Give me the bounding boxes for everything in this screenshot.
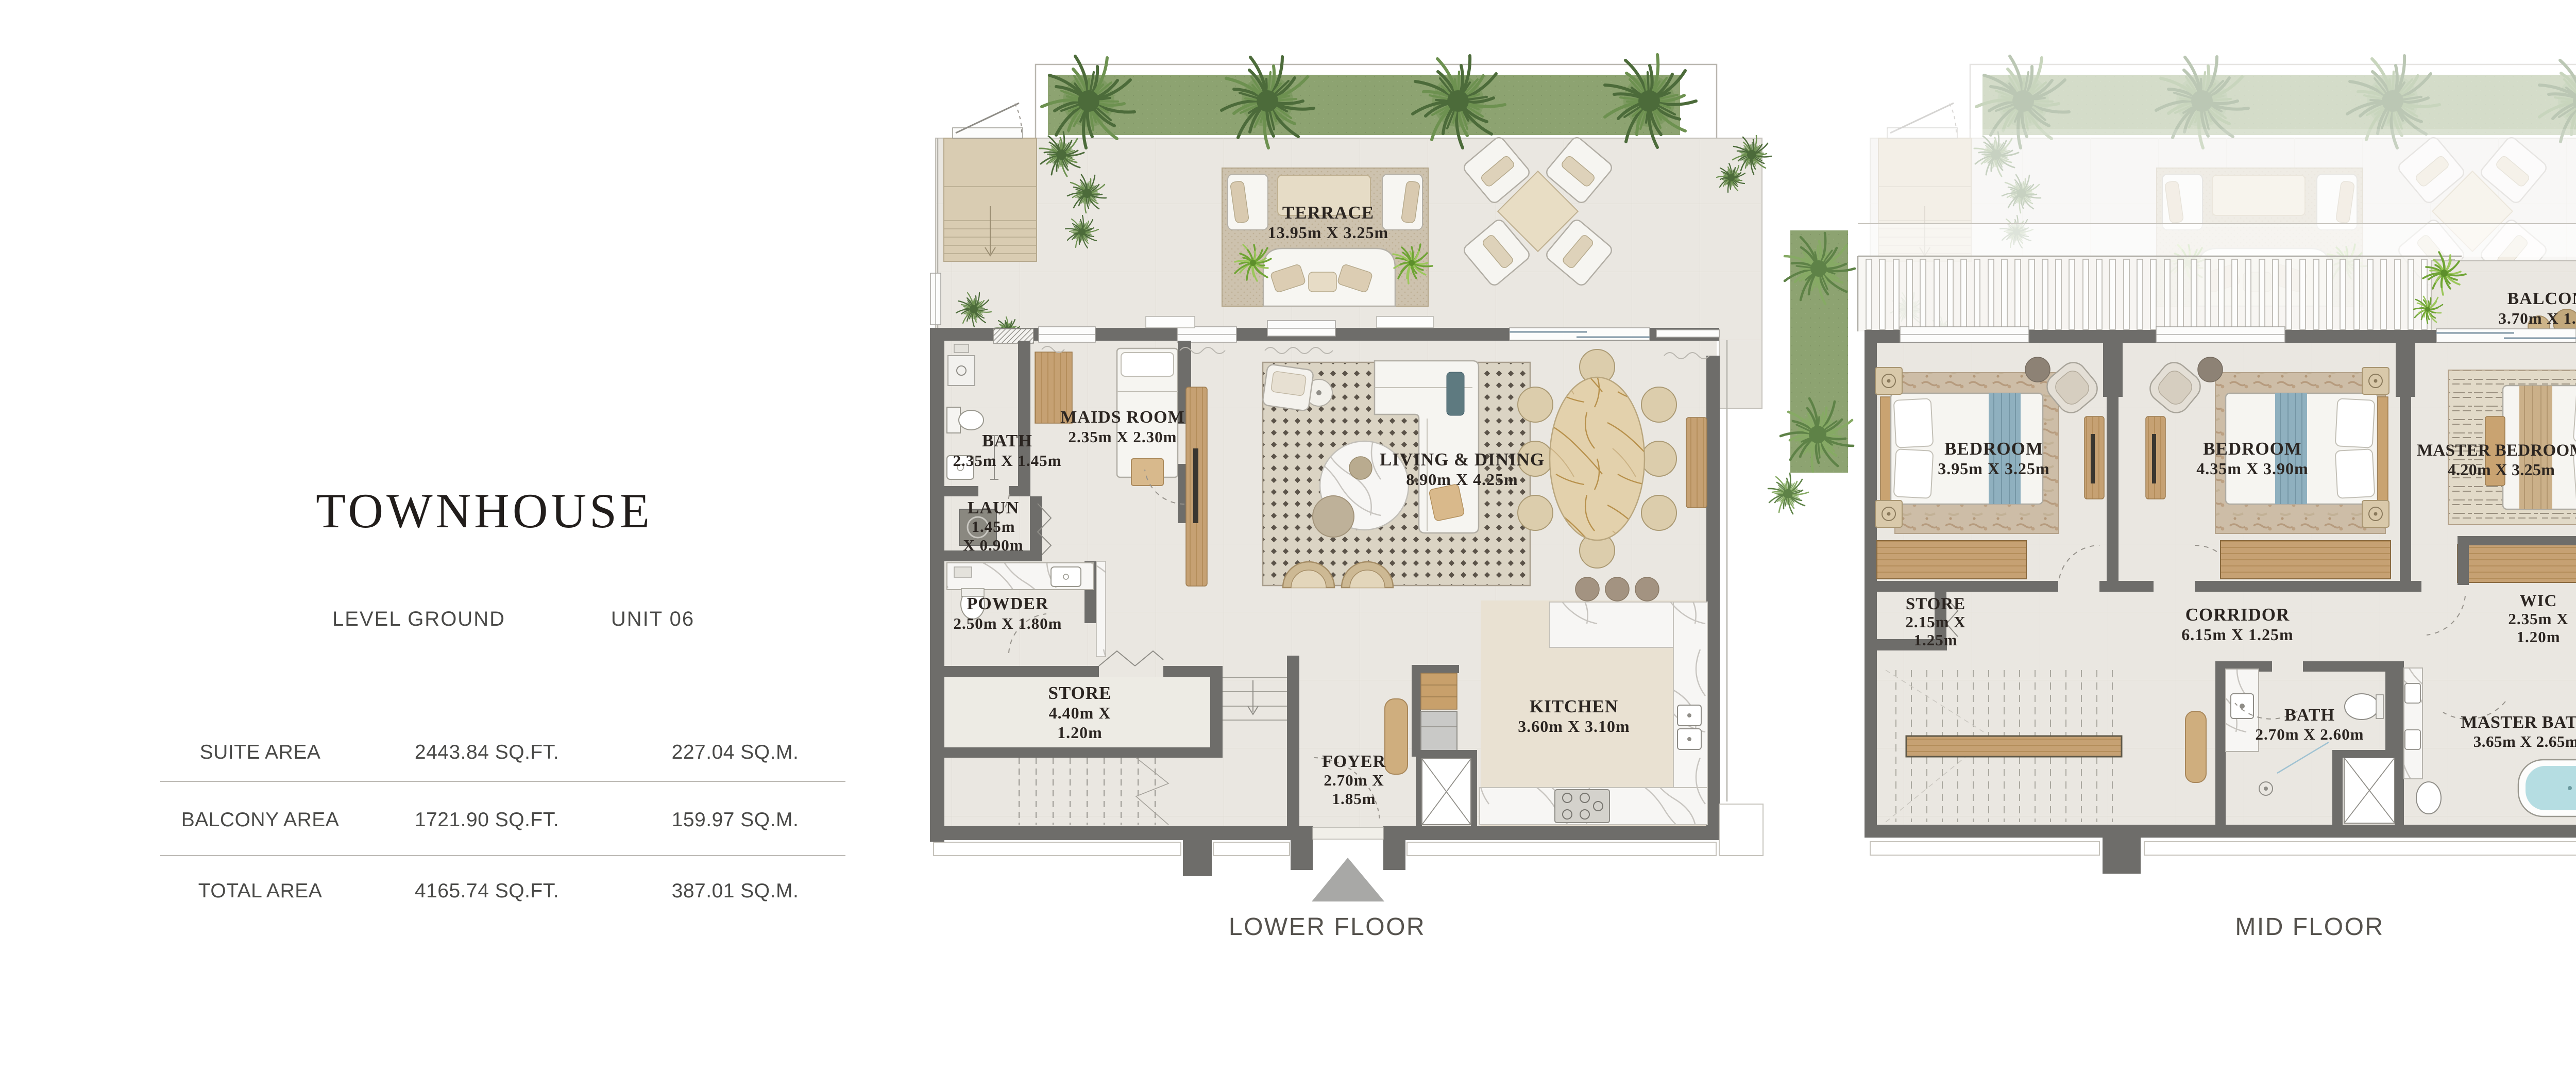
svg-text:X 0.90m: X 0.90m	[963, 536, 1023, 554]
svg-text:LAUN: LAUN	[968, 498, 1019, 517]
svg-text:MID FLOOR: MID FLOOR	[2235, 913, 2384, 941]
svg-text:2.35m X 1.45m: 2.35m X 1.45m	[953, 452, 1061, 470]
svg-text:LOWER FLOOR: LOWER FLOOR	[1229, 913, 1426, 941]
svg-text:BALCONY: BALCONY	[2507, 289, 2576, 308]
svg-text:UNIT 06: UNIT 06	[611, 608, 694, 630]
svg-text:387.01 SQ.M.: 387.01 SQ.M.	[672, 880, 799, 902]
svg-text:1721.90 SQ.FT.: 1721.90 SQ.FT.	[415, 809, 559, 831]
svg-text:BEDROOM: BEDROOM	[2203, 439, 2302, 459]
svg-text:2.70m X: 2.70m X	[1324, 771, 1384, 789]
svg-text:3.95m X 3.25m: 3.95m X 3.25m	[1938, 459, 2049, 478]
svg-text:MASTER BATH: MASTER BATH	[2461, 713, 2576, 732]
svg-text:227.04 SQ.M.: 227.04 SQ.M.	[672, 741, 799, 763]
svg-text:4.35m X 3.90m: 4.35m X 3.90m	[2196, 459, 2308, 478]
svg-text:1.20m: 1.20m	[1057, 723, 1103, 742]
svg-text:POWDER: POWDER	[967, 594, 1049, 613]
svg-text:1.85m: 1.85m	[1332, 790, 1376, 808]
svg-text:BEDROOM: BEDROOM	[1944, 439, 2043, 459]
svg-text:2.50m X 1.80m: 2.50m X 1.80m	[953, 614, 1062, 632]
svg-text:3.60m X 3.10m: 3.60m X 3.10m	[1518, 717, 1630, 736]
svg-text:3.65m X 2.65m: 3.65m X 2.65m	[2473, 732, 2576, 750]
svg-text:BALCONY AREA: BALCONY AREA	[181, 809, 340, 831]
svg-text:3.70m X 1.55m: 3.70m X 1.55m	[2498, 309, 2576, 327]
svg-text:FOYER: FOYER	[1322, 752, 1386, 771]
svg-text:2.35m X: 2.35m X	[2508, 610, 2568, 628]
svg-text:1.20m: 1.20m	[2516, 628, 2560, 646]
svg-text:1.45m: 1.45m	[971, 517, 1015, 536]
svg-text:2.15m X: 2.15m X	[1905, 613, 1965, 631]
svg-text:BATH: BATH	[982, 431, 1032, 450]
svg-text:STORE: STORE	[1048, 683, 1111, 703]
svg-text:LIVING & DINING: LIVING & DINING	[1380, 449, 1545, 470]
svg-text:4.20m X 3.25m: 4.20m X 3.25m	[2448, 460, 2555, 479]
svg-text:BATH: BATH	[2284, 706, 2335, 725]
svg-text:TOTAL AREA: TOTAL AREA	[198, 880, 323, 902]
svg-text:2443.84 SQ.FT.: 2443.84 SQ.FT.	[415, 741, 559, 763]
svg-text:2.35m X 2.30m: 2.35m X 2.30m	[1068, 428, 1177, 446]
svg-text:6.15m X 1.25m: 6.15m X 1.25m	[2181, 625, 2293, 644]
svg-text:13.95m X 3.25m: 13.95m X 3.25m	[1268, 223, 1388, 242]
svg-text:TERRACE: TERRACE	[1282, 203, 1374, 223]
svg-text:1.25m: 1.25m	[1913, 631, 1957, 649]
svg-text:4.40m X: 4.40m X	[1049, 704, 1111, 722]
svg-text:KITCHEN: KITCHEN	[1530, 696, 1618, 716]
svg-text:159.97 SQ.M.: 159.97 SQ.M.	[672, 809, 799, 831]
svg-text:4165.74 SQ.FT.: 4165.74 SQ.FT.	[415, 880, 559, 902]
svg-text:MASTER BEDROOM: MASTER BEDROOM	[2417, 441, 2576, 460]
svg-text:MAIDS ROOM: MAIDS ROOM	[1060, 408, 1184, 427]
svg-text:TOWNHOUSE: TOWNHOUSE	[316, 483, 653, 538]
svg-text:CORRIDOR: CORRIDOR	[2185, 605, 2290, 625]
svg-text:LEVEL GROUND: LEVEL GROUND	[332, 608, 505, 630]
svg-text:2.70m X 2.60m: 2.70m X 2.60m	[2255, 725, 2364, 743]
svg-text:STORE: STORE	[1906, 595, 1965, 613]
svg-text:WIC: WIC	[2520, 592, 2557, 610]
svg-text:8.90m X 4.25m: 8.90m X 4.25m	[1406, 470, 1518, 489]
svg-text:SUITE AREA: SUITE AREA	[200, 741, 321, 763]
